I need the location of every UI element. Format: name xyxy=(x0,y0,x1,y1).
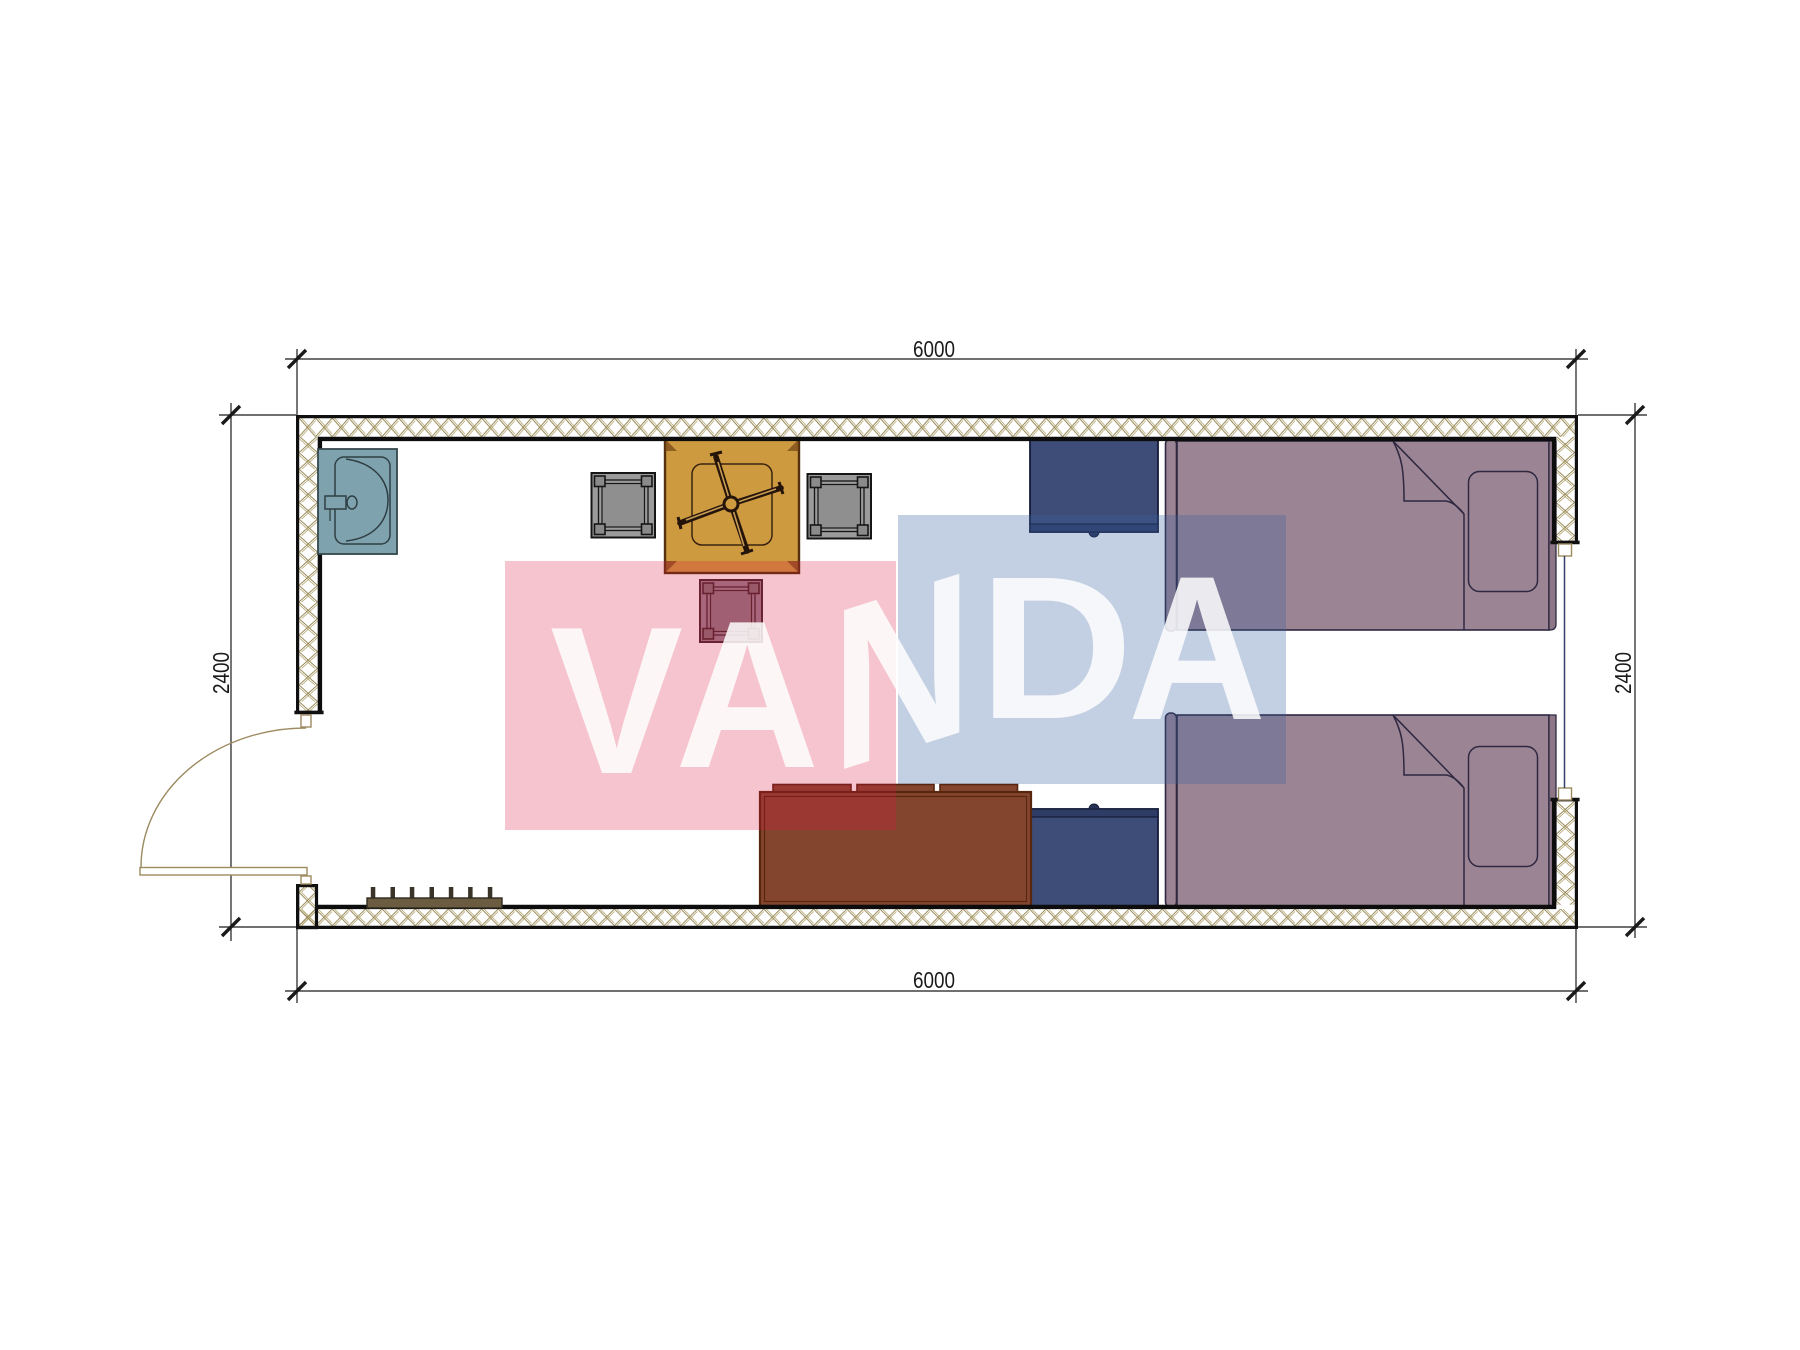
svg-text:A: A xyxy=(675,577,819,812)
svg-text:N: N xyxy=(831,520,973,822)
svg-text:D: D xyxy=(979,535,1133,762)
svg-text:2400: 2400 xyxy=(208,652,234,694)
svg-text:2400: 2400 xyxy=(1610,652,1636,694)
svg-text:A: A xyxy=(1128,533,1266,763)
svg-text:6000: 6000 xyxy=(913,336,955,362)
svg-text:6000: 6000 xyxy=(913,967,955,993)
svg-text:V: V xyxy=(550,583,683,818)
